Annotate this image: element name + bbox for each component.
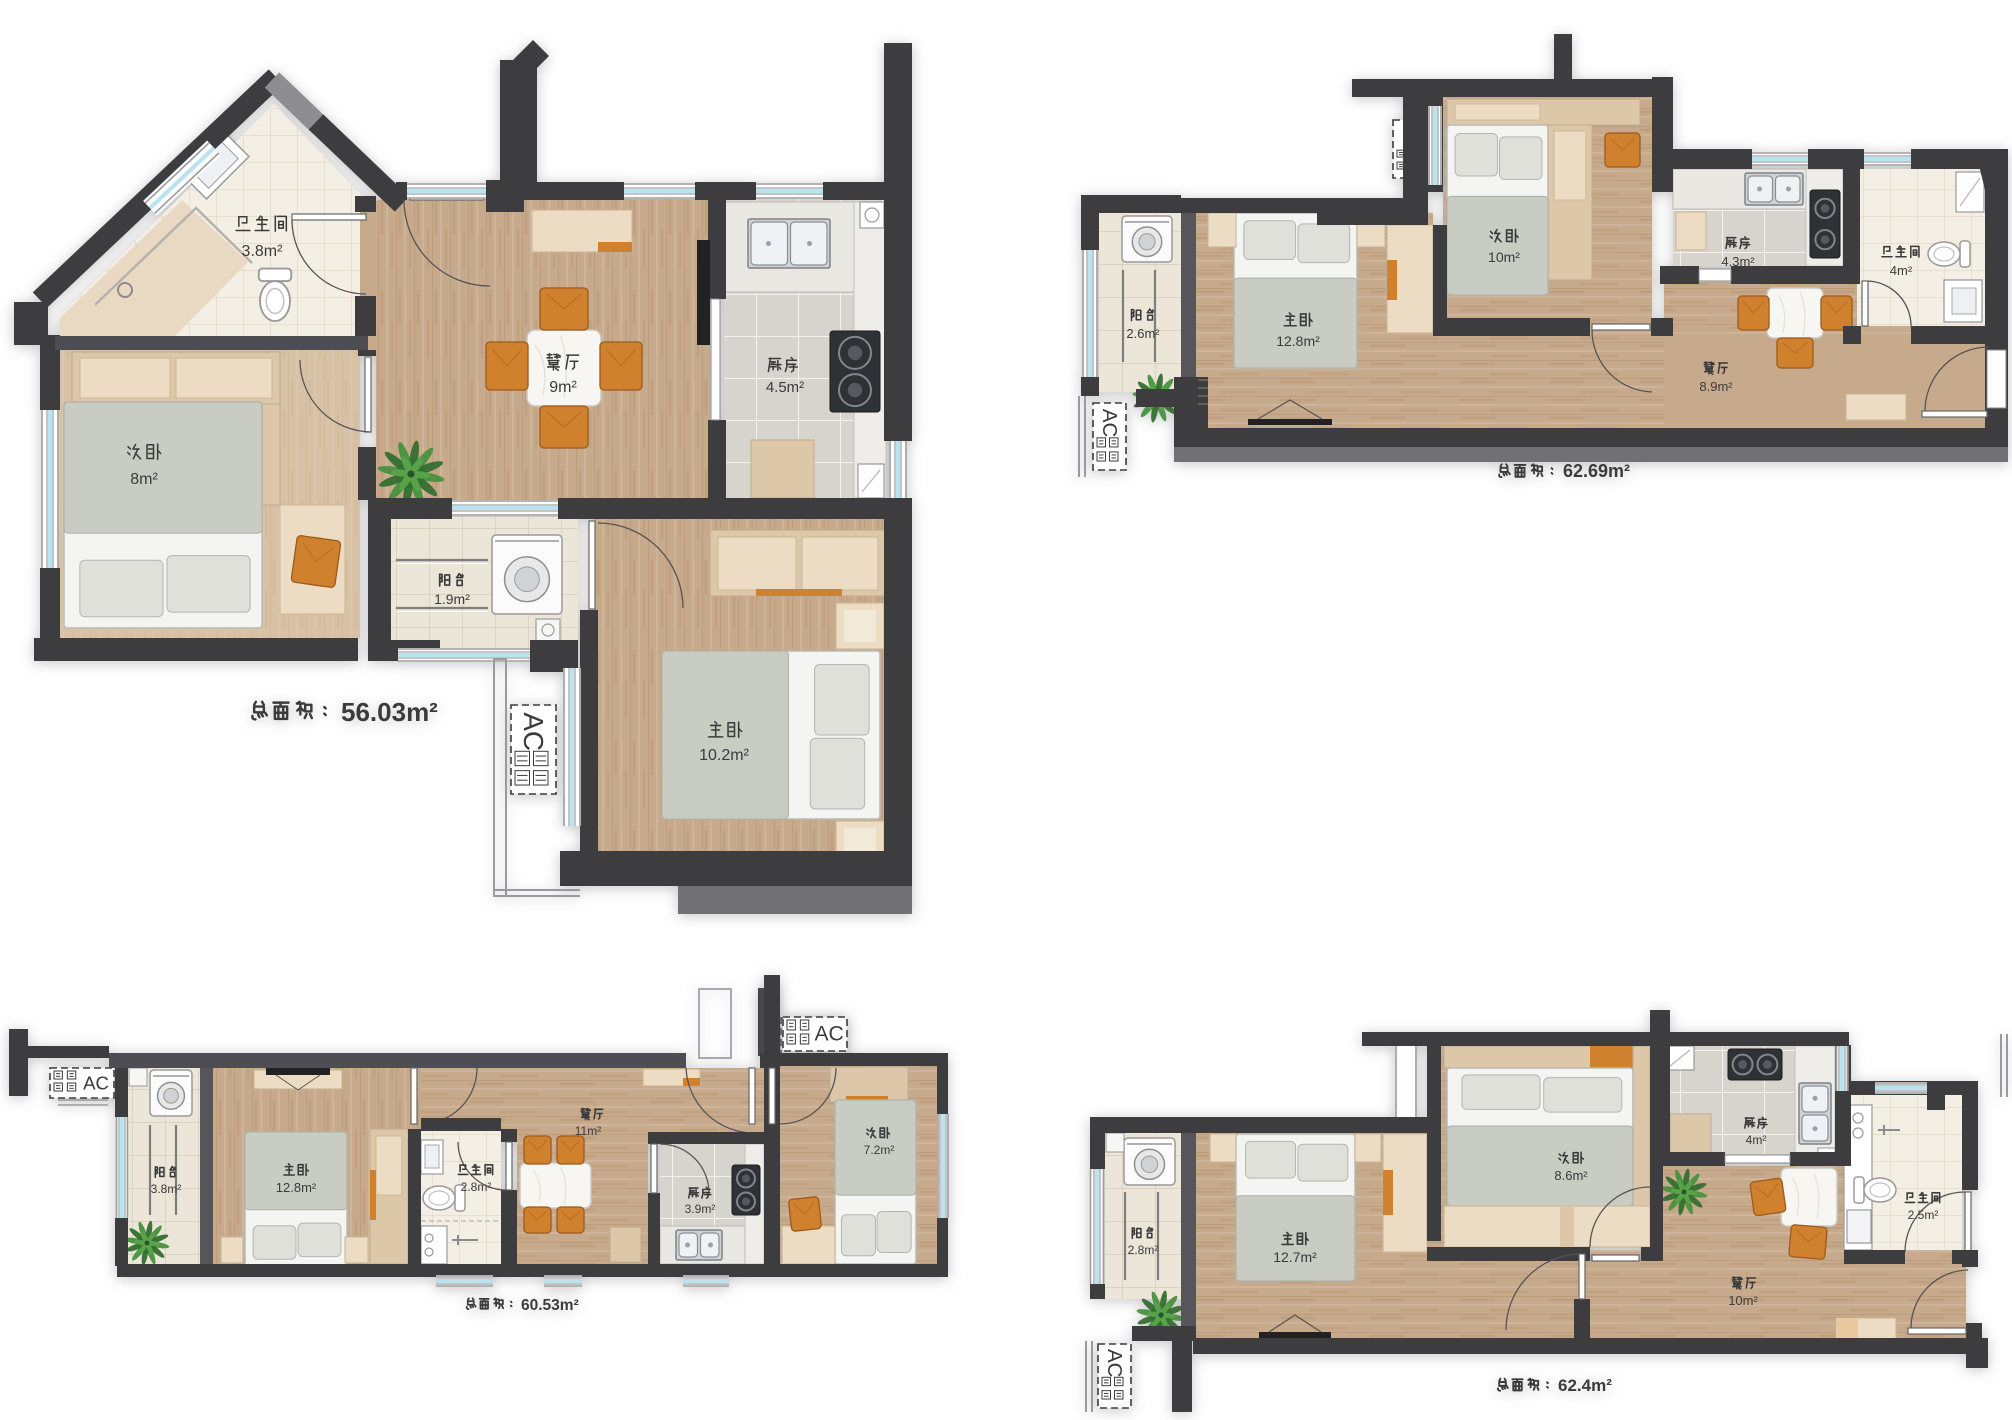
svg-text:11m²: 11m²: [575, 1124, 601, 1138]
svg-text:8.6m²: 8.6m²: [1554, 1168, 1588, 1183]
svg-text:12.8m²: 12.8m²: [1276, 333, 1320, 349]
svg-text:2.8m²: 2.8m²: [461, 1180, 492, 1194]
svg-text:10m²: 10m²: [1488, 249, 1520, 265]
svg-text:AC: AC: [814, 1023, 843, 1046]
svg-text:12.8m²: 12.8m²: [276, 1180, 317, 1195]
svg-text:AC: AC: [518, 712, 549, 751]
svg-text:9m²: 9m²: [549, 379, 577, 396]
svg-text:AC: AC: [1098, 409, 1121, 437]
svg-text:AC: AC: [83, 1073, 109, 1094]
svg-text:3.9m²: 3.9m²: [685, 1202, 716, 1216]
svg-text:62.4m²: 62.4m²: [1558, 1376, 1612, 1395]
svg-text:4.3m²: 4.3m²: [1721, 254, 1755, 269]
svg-text:8m²: 8m²: [130, 471, 158, 488]
svg-text:10m²: 10m²: [1728, 1293, 1758, 1308]
svg-text:56.03m²: 56.03m²: [341, 697, 438, 727]
svg-text:4m²: 4m²: [1890, 263, 1913, 278]
svg-text:2.8m²: 2.8m²: [1128, 1243, 1159, 1257]
svg-text:10.2m²: 10.2m²: [699, 747, 749, 764]
svg-text:12.7m²: 12.7m²: [1273, 1249, 1317, 1265]
svg-text:60.53m²: 60.53m²: [521, 1297, 579, 1314]
svg-text:1.9m²: 1.9m²: [434, 591, 470, 607]
svg-text:2.5m²: 2.5m²: [1908, 1208, 1939, 1222]
svg-text:4m²: 4m²: [1746, 1133, 1767, 1147]
svg-text:3.8m²: 3.8m²: [242, 243, 284, 260]
svg-text:4.5m²: 4.5m²: [766, 379, 804, 396]
svg-text:62.69m²: 62.69m²: [1563, 461, 1630, 481]
svg-text:2.6m²: 2.6m²: [1126, 326, 1160, 341]
svg-text:8.9m²: 8.9m²: [1699, 379, 1733, 394]
svg-text:AC: AC: [1103, 1349, 1126, 1377]
svg-text:3.8m²: 3.8m²: [151, 1182, 182, 1196]
svg-text:7.2m²: 7.2m²: [864, 1143, 895, 1157]
